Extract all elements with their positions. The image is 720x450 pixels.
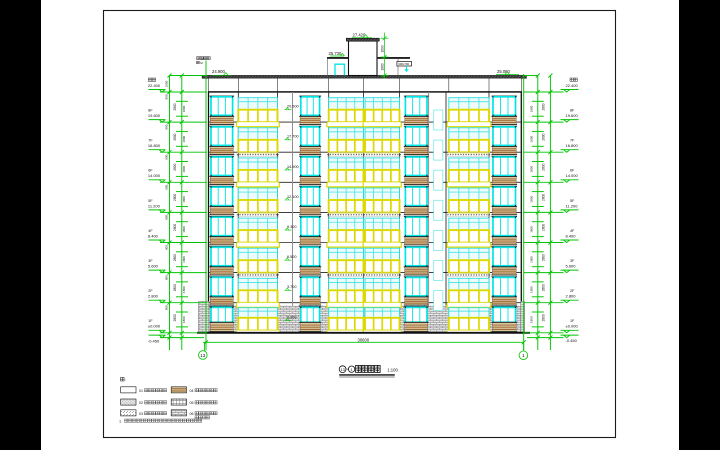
svg-text:2800: 2800 <box>542 194 546 201</box>
svg-text:1800: 1800 <box>182 196 186 203</box>
svg-text:5F: 5F <box>148 199 153 203</box>
svg-text:17.700: 17.700 <box>287 135 299 139</box>
svg-text:900: 900 <box>164 275 168 280</box>
svg-text:7F: 7F <box>148 139 153 143</box>
svg-text:1800: 1800 <box>529 256 533 263</box>
svg-text:1800: 1800 <box>529 166 533 173</box>
svg-text:±0.000: ±0.000 <box>566 324 579 329</box>
svg-text:2800: 2800 <box>542 254 546 261</box>
svg-text:2800: 2800 <box>173 254 177 261</box>
svg-text:01: 01 <box>139 389 143 393</box>
svg-text:2800: 2800 <box>542 133 546 140</box>
svg-text:900: 900 <box>164 154 168 159</box>
svg-text:1800: 1800 <box>182 105 186 112</box>
svg-text:1800: 1800 <box>529 286 533 293</box>
svg-text:16.800: 16.800 <box>566 143 579 148</box>
svg-text:1: 1 <box>522 353 525 358</box>
svg-text:12.100: 12.100 <box>287 195 299 199</box>
svg-text:2800: 2800 <box>542 314 546 321</box>
svg-text:2800: 2800 <box>542 284 546 291</box>
svg-text:1800: 1800 <box>529 105 533 112</box>
svg-text:900x700: 900x700 <box>398 62 409 66</box>
svg-text:3.700: 3.700 <box>287 285 297 289</box>
svg-text:2800: 2800 <box>173 194 177 201</box>
svg-text:05: 05 <box>190 401 194 405</box>
svg-text:6F: 6F <box>570 169 575 173</box>
svg-text:1690: 1690 <box>380 45 384 52</box>
svg-text:2.800: 2.800 <box>566 294 577 299</box>
svg-text:19.600: 19.600 <box>566 113 579 118</box>
svg-text:900: 900 <box>164 305 168 310</box>
svg-text:2800: 2800 <box>542 103 546 110</box>
svg-text:22.400: 22.400 <box>566 83 579 88</box>
svg-text:11.200: 11.200 <box>566 203 579 208</box>
svg-text:6F: 6F <box>148 169 153 173</box>
svg-text:9.300: 9.300 <box>287 225 297 229</box>
svg-text:1800: 1800 <box>529 316 533 323</box>
svg-text:900: 900 <box>164 215 168 220</box>
svg-text:±0.000: ±0.000 <box>148 324 161 329</box>
svg-text:1F: 1F <box>570 319 575 323</box>
svg-text:1800: 1800 <box>182 166 186 173</box>
svg-text:1.: 1. <box>119 419 122 423</box>
svg-text:1800: 1800 <box>529 226 533 233</box>
svg-text:2800: 2800 <box>542 163 546 170</box>
svg-text:1800: 1800 <box>529 135 533 142</box>
svg-text:8F: 8F <box>570 109 575 113</box>
svg-text:1800: 1800 <box>182 135 186 142</box>
svg-text:20.500: 20.500 <box>287 105 299 109</box>
svg-text:13: 13 <box>200 353 206 358</box>
svg-text:2F: 2F <box>570 289 575 293</box>
svg-text:1800: 1800 <box>182 256 186 263</box>
svg-text:8.400: 8.400 <box>566 233 577 238</box>
svg-text:24.900: 24.900 <box>212 69 225 74</box>
svg-text:2800: 2800 <box>173 163 177 170</box>
svg-text:14.000: 14.000 <box>566 173 579 178</box>
svg-text:1:100: 1:100 <box>387 368 398 373</box>
svg-text:22.400: 22.400 <box>148 83 161 88</box>
svg-text:16.800: 16.800 <box>148 143 161 148</box>
svg-text:5.600: 5.600 <box>148 264 159 269</box>
svg-text:2800: 2800 <box>542 224 546 231</box>
svg-text:25.730: 25.730 <box>329 51 342 56</box>
svg-text:06: 06 <box>190 412 194 416</box>
svg-text:6.500: 6.500 <box>287 255 297 259</box>
svg-text:5.600: 5.600 <box>566 264 577 269</box>
svg-text:14.000: 14.000 <box>148 173 161 178</box>
svg-text:04: 04 <box>190 389 194 393</box>
svg-text:14.900: 14.900 <box>287 165 299 169</box>
svg-text:2800: 2800 <box>173 314 177 321</box>
svg-text:900: 900 <box>164 124 168 129</box>
svg-text:1800: 1800 <box>182 226 186 233</box>
svg-text:30600: 30600 <box>358 337 370 342</box>
svg-text:-0.450: -0.450 <box>148 338 160 343</box>
svg-text:900: 900 <box>164 245 168 250</box>
svg-text:2800: 2800 <box>173 103 177 110</box>
svg-text:1800: 1800 <box>182 286 186 293</box>
svg-text:2F: 2F <box>148 289 153 293</box>
svg-text:3F: 3F <box>148 259 153 263</box>
svg-text:1800: 1800 <box>380 63 384 70</box>
svg-text:2800: 2800 <box>173 284 177 291</box>
svg-text:5F: 5F <box>570 199 575 203</box>
svg-text:0.900: 0.900 <box>287 315 297 319</box>
svg-text:4F: 4F <box>570 229 575 233</box>
svg-text:1800: 1800 <box>182 316 186 323</box>
svg-text:1800: 1800 <box>529 196 533 203</box>
svg-text:900: 900 <box>164 94 168 99</box>
svg-text:02: 02 <box>139 401 143 405</box>
svg-text:900: 900 <box>164 184 168 189</box>
svg-text:2800: 2800 <box>173 133 177 140</box>
svg-text:19.600: 19.600 <box>148 113 161 118</box>
svg-text:8.400: 8.400 <box>148 233 159 238</box>
svg-text:2800: 2800 <box>173 224 177 231</box>
svg-text:1500: 1500 <box>164 80 168 87</box>
svg-text:7F: 7F <box>570 139 575 143</box>
svg-text:2.800: 2.800 <box>148 294 159 299</box>
svg-text:3F: 3F <box>570 259 575 263</box>
svg-text::: : <box>125 377 126 382</box>
svg-text:-0.450: -0.450 <box>566 338 578 343</box>
svg-text:8F: 8F <box>148 109 153 113</box>
svg-text:03: 03 <box>139 412 143 416</box>
svg-text:4F: 4F <box>148 229 153 233</box>
svg-text:1F: 1F <box>148 319 153 323</box>
svg-text:11.200: 11.200 <box>148 203 161 208</box>
